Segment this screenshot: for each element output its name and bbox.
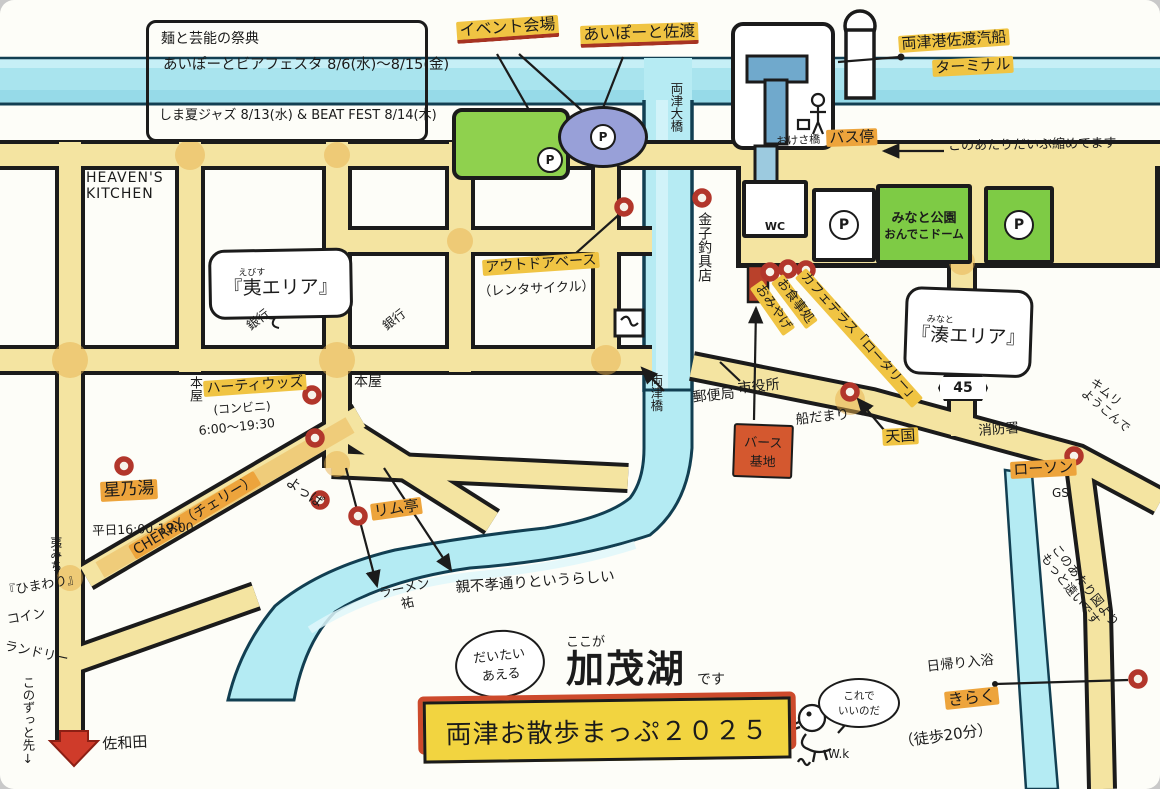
festival-line1: 麺と芸能の祭典 xyxy=(161,31,259,47)
kaneko-tackle-label: 金子釣具店 xyxy=(696,212,712,348)
wc-label: WC xyxy=(765,221,785,234)
map-title-banner: 両津お散歩まっぷ２０２５ xyxy=(418,691,797,754)
himawari-laundry-line4: このずっと先↓ xyxy=(20,676,34,786)
festival-line3: しま夏ジャズ 8/13(水) & BEAT FEST 8/14(木) xyxy=(159,109,437,124)
ebisu-area-box: 『夷えびすエリア』 xyxy=(208,247,353,320)
parking-icon: P xyxy=(537,147,563,173)
desu-label: です xyxy=(697,672,725,688)
minato-area-box: 『湊みなとエリア』 xyxy=(903,286,1034,378)
fire-station-label: 消防署 xyxy=(978,421,1019,439)
berth-base-box: バース 基地 xyxy=(732,423,794,479)
event-venue-area: P xyxy=(452,108,570,180)
parking-box-green: P xyxy=(984,186,1054,264)
parking-box-white: P xyxy=(812,188,876,262)
gas-station-label: GS xyxy=(1052,487,1069,501)
festival-info-box: 麺と芸能の祭典 あいぽーとビアフェスタ 8/6(水)〜8/15(金) しま夏ジャ… xyxy=(146,20,428,142)
tank-tower xyxy=(845,11,875,98)
tengoku-label: 天国 xyxy=(882,427,919,446)
hand-drawn-walking-map: 麺と芸能の祭典 あいぽーとビアフェスタ 8/6(水)〜8/15(金) しま夏ジャ… xyxy=(0,0,1160,789)
lake-kamo-label: 加茂湖 xyxy=(566,648,686,692)
bookstore-label: 本屋 xyxy=(354,374,382,390)
minato-park-label: みなと公園 xyxy=(891,207,956,226)
parking-icon: P xyxy=(829,210,859,240)
compressed-note: このあたりだいぶ縮めてます xyxy=(948,137,1117,155)
ryotsu-bashi-label: 両津橋 xyxy=(648,374,662,448)
route-45-sign: 45 xyxy=(938,375,988,401)
sawada-label: 佐和田 xyxy=(102,734,148,754)
hoshinoyu-label: 星乃湯 xyxy=(100,479,158,502)
minato-park-box: みなと公園 おんでこドーム xyxy=(876,184,972,264)
aiport-sado-label: あいぽーと佐渡 xyxy=(580,22,699,48)
heavens-kitchen-label: HEAVEN'SKITCHEN xyxy=(86,170,164,202)
wc-building: WC xyxy=(742,180,808,238)
okesa-bridge-label: おけさ橋 xyxy=(776,134,821,149)
small-building-icon xyxy=(615,310,643,336)
bookstore-label: 本屋 xyxy=(186,376,201,424)
parking-icon: P xyxy=(590,124,616,150)
bus-stop-label: バス停 xyxy=(826,128,878,147)
ondeko-dome-label: おんでこドーム xyxy=(884,226,964,242)
line-dot xyxy=(898,54,905,61)
parking-icon: P xyxy=(1004,210,1034,240)
artist-signature: W.k xyxy=(828,748,849,762)
ferry-terminal-building xyxy=(733,24,833,148)
aiport-sado-area: P xyxy=(558,106,648,168)
river-southeast xyxy=(1005,470,1058,789)
bird-speech-bubble: これで いいのだ xyxy=(818,678,900,728)
festival-line2: あいぽーとビアフェスタ 8/6(水)〜8/15(金) xyxy=(163,57,449,74)
map-title: 両津お散歩まっぷ２０２５ xyxy=(445,709,768,751)
ryotsu-ohashi-label: 両津大橋 xyxy=(668,82,682,162)
